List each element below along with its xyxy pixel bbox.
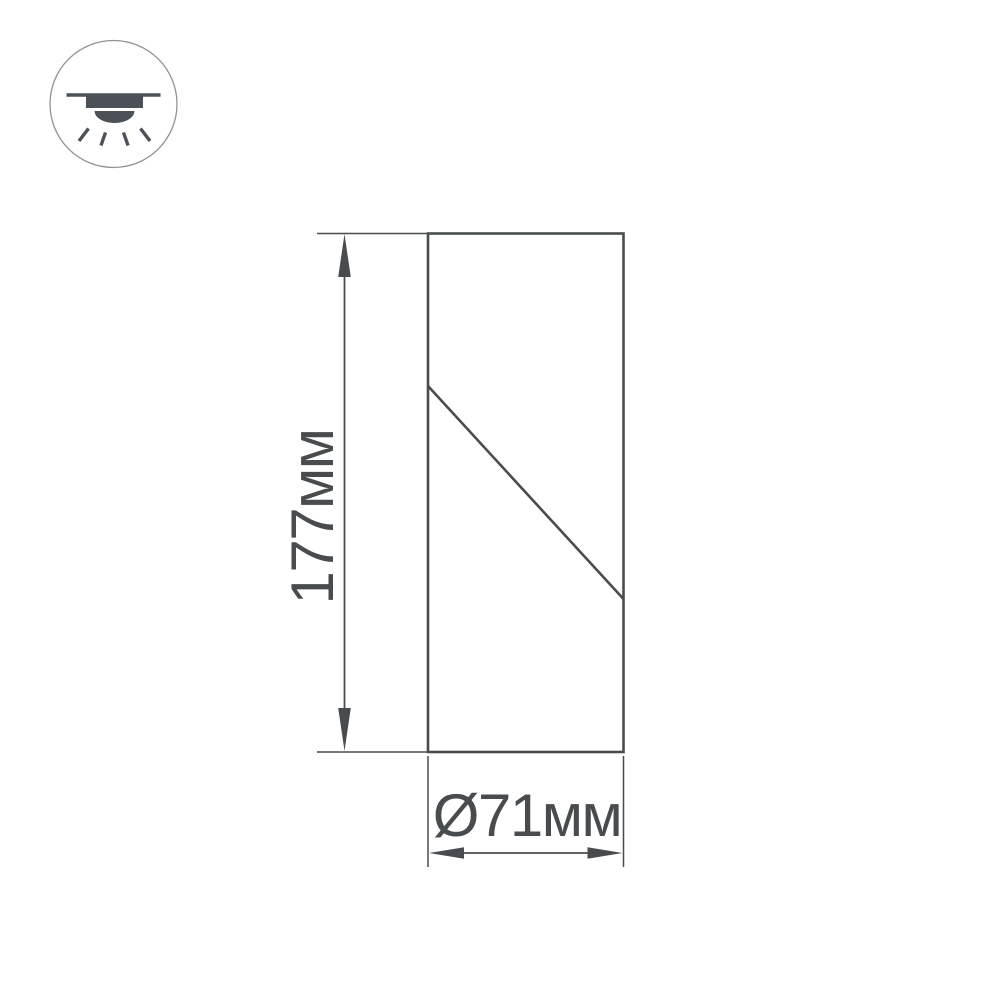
diameter-dimension: Ø71мм <box>428 756 624 867</box>
ceiling-light-icon <box>50 41 177 168</box>
arrow-down-icon <box>338 708 351 751</box>
height-dimension: 177мм <box>279 234 427 753</box>
icon-fixture-body <box>86 94 143 109</box>
diameter-dimension-label: Ø71мм <box>433 782 621 849</box>
height-dimension-label: 177мм <box>279 429 346 604</box>
fixture-seam-diagonal <box>428 386 624 599</box>
dimension-drawing: 177мм Ø71мм <box>0 0 1000 1000</box>
arrow-up-icon <box>338 234 351 277</box>
product-dimensions-image: 177мм Ø71мм <box>0 0 1000 1000</box>
fixture-outline <box>428 234 624 753</box>
